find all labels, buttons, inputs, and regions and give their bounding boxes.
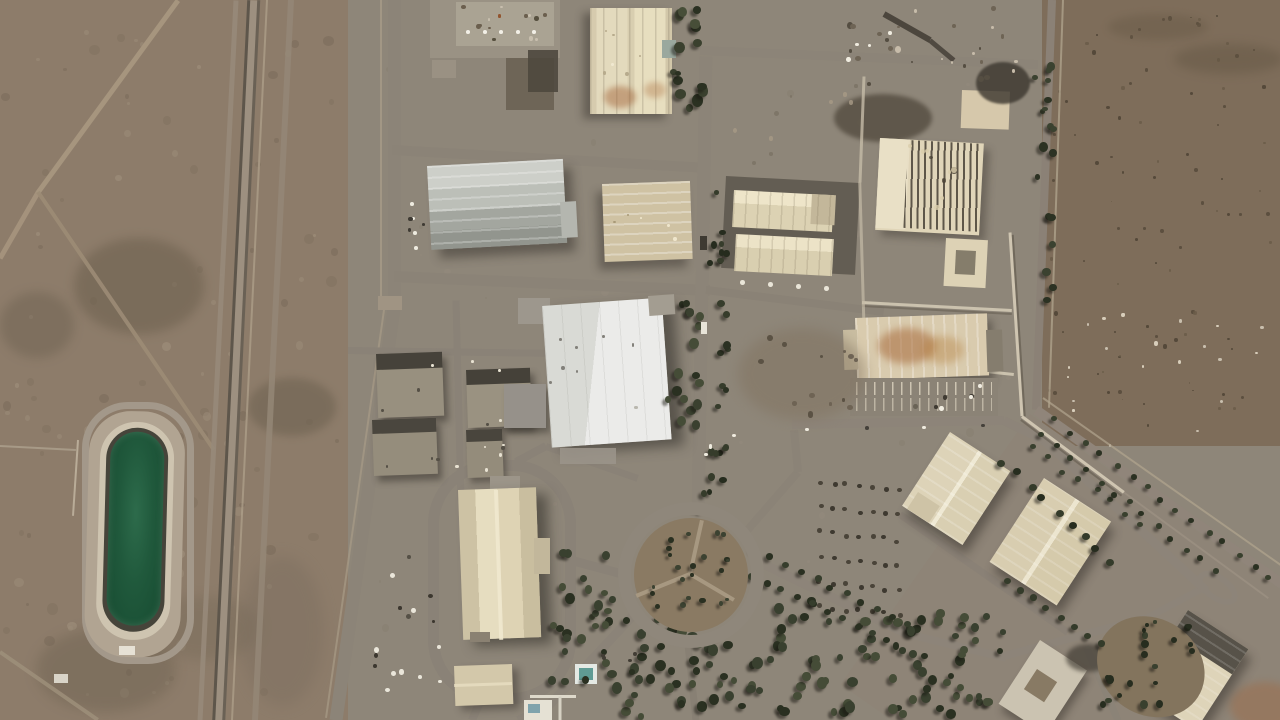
trees-se-road-n: [1067, 431, 1073, 436]
desert-left-texture-dark: [89, 45, 100, 55]
desert-left-texture-light: [15, 383, 19, 387]
warehouse-a-roof-units: [603, 71, 607, 74]
lot-sw-vehicles: [374, 647, 379, 653]
desert-left-texture-dark: [117, 34, 124, 42]
trees-perimeter-v: [1046, 67, 1052, 74]
parking-cars: [978, 384, 982, 388]
dirt-island-trees: [1141, 651, 1147, 658]
roundabout-trees: [715, 530, 720, 536]
block-m-vents: [484, 446, 486, 448]
desert-left-texture-dark: [40, 451, 44, 456]
trees-v1-south: [722, 446, 728, 451]
avenue-trees-s: [839, 615, 846, 621]
desert-right-speckles: [1053, 391, 1057, 395]
warehouse-b-cars: [410, 202, 414, 206]
park-east: [928, 675, 937, 685]
park-east: [972, 637, 978, 644]
parking-stripes-2: [856, 398, 992, 411]
block-m4-dark: [466, 429, 502, 442]
compound-texture: [739, 441, 743, 445]
desert-left-texture-dark: [31, 396, 37, 402]
trees-se-road-n: [1096, 450, 1102, 455]
trees-perimeter-v: [1032, 75, 1038, 80]
rock-patch-2: [0, 292, 74, 358]
warehouse-b-cars: [414, 246, 418, 250]
pond-hut-2: [54, 674, 68, 683]
trees-west-of-d: [719, 230, 726, 235]
block-m1-dark: [376, 352, 443, 370]
compound-texture: [807, 560, 810, 563]
trees-west-of-d: [717, 258, 723, 263]
block-m-vents: [455, 465, 458, 468]
trees-between-g-h: [1082, 533, 1090, 540]
desert-right-light-speckles: [1154, 341, 1158, 345]
lot-sw-vehicles: [391, 671, 396, 676]
trees-h-sw: [1084, 633, 1091, 639]
e-south-building-dark: [955, 250, 976, 275]
industrial-roof-clutter: [529, 36, 533, 40]
dirt-island-trees: [1189, 648, 1195, 654]
roundabout-trees: [701, 554, 707, 560]
trees-perimeter-v: [1045, 78, 1050, 83]
white-trucks: [888, 31, 892, 36]
dirt-island-trees: [1142, 632, 1147, 638]
desert-right-speckles: [1174, 338, 1178, 342]
park-east: [943, 679, 950, 686]
desert-right-speckles: [1193, 311, 1197, 314]
trees-h-sw: [1017, 587, 1024, 593]
desert-right-speckles: [1179, 246, 1181, 248]
trees-east-of-a: [675, 89, 686, 99]
ne-streak-1: [1108, 14, 1208, 40]
debris-field: [979, 47, 981, 49]
park-south-1: [635, 675, 643, 684]
roundabout-trees: [668, 537, 674, 543]
trees-east-of-hall: [689, 338, 699, 349]
industrial-plant: [456, 2, 554, 46]
dirt-island-trees: [1105, 698, 1112, 704]
desert-left-texture-dark: [326, 276, 337, 287]
truck-on-v1-white: [701, 322, 707, 334]
park-south-1: [725, 691, 734, 701]
trees-se-road-s: [1167, 536, 1173, 541]
desert-right-speckles: [1117, 227, 1120, 230]
desert-right-speckles: [1146, 325, 1149, 327]
lot-sw-vehicles: [399, 669, 404, 674]
debris-field: [991, 26, 994, 29]
park-south-1: [657, 643, 665, 650]
park-east: [918, 667, 927, 677]
desert-right-speckles: [1054, 311, 1058, 315]
trees-v1-south: [707, 489, 712, 495]
park-east: [923, 685, 931, 693]
park-west: [594, 600, 604, 611]
warehouse-d1-ridges: [732, 190, 834, 232]
park-west: [592, 623, 599, 629]
desert-left-texture-dark: [331, 248, 338, 255]
debris-field: [952, 24, 956, 28]
park-west: [582, 676, 589, 684]
park-east: [917, 615, 926, 625]
cars-near-roundabout: [601, 654, 604, 657]
compound-texture: [899, 440, 905, 445]
block-m-vents: [499, 419, 502, 422]
trees-east-of-hall: [680, 395, 687, 403]
avenue-trees-n: [844, 590, 851, 596]
small-house-sw-roof: [528, 704, 540, 713]
debris-field: [1012, 69, 1015, 73]
desert-right-light-speckles: [1203, 345, 1205, 348]
park-south-2: [817, 677, 827, 688]
complex-e-patches: [908, 144, 913, 148]
trees-v1-east: [717, 350, 724, 356]
desert-right-speckles: [1153, 176, 1156, 179]
trees-se-road-n: [1219, 538, 1225, 543]
desert-right-speckles: [1065, 100, 1068, 103]
field-east-marks: [767, 335, 773, 341]
trees-east-of-hall: [672, 386, 681, 396]
park-east: [958, 652, 966, 658]
debris-field: [984, 75, 990, 80]
white-hall-clutter: [602, 335, 605, 338]
park-east: [907, 626, 915, 636]
park-south-1: [752, 657, 763, 669]
warehouse-a-stain-2: [644, 82, 666, 98]
lot-sw-vehicles: [398, 606, 401, 610]
white-trucks: [868, 44, 872, 47]
trees-se-road-n: [1172, 508, 1178, 513]
complex-e-patches: [940, 196, 944, 200]
yard-marks-ne: [733, 128, 737, 133]
park-south-2: [831, 708, 837, 715]
trees-se-road-s: [1083, 467, 1089, 472]
desert-right-speckles: [1085, 42, 1088, 46]
desert-left-texture-dark: [281, 299, 288, 307]
trees-se-road-s: [1127, 499, 1133, 504]
trees-west-of-d: [719, 249, 725, 255]
complex-e-streaks: [903, 140, 982, 232]
debris-field: [867, 82, 871, 86]
complex-e-patches: [934, 205, 939, 210]
orchard-row-5: [859, 585, 864, 590]
trees-h-sw: [1004, 578, 1011, 584]
desert-right-speckles: [1184, 333, 1187, 335]
park-west: [609, 596, 616, 603]
park-south-2: [867, 635, 875, 642]
white-trucks: [855, 43, 858, 46]
avenue-trees-n: [857, 599, 864, 605]
trees-east-of-a: [690, 19, 701, 28]
block-m-vents: [498, 369, 501, 372]
roundabout-trees: [721, 532, 725, 536]
roundabout-trees: [666, 546, 671, 551]
park-south-2: [779, 707, 789, 717]
white-dots-mid: [709, 444, 713, 448]
white-hall-clutter: [559, 338, 562, 341]
trees-se-road-n: [1131, 474, 1137, 479]
lot-sw-vehicles: [407, 555, 411, 559]
desert-right-speckles: [1129, 82, 1132, 85]
dirt-island-trees: [1127, 680, 1133, 687]
white-hall-seams: [542, 298, 672, 448]
dirt-island-trees: [1153, 620, 1157, 623]
desert-left-texture-light: [296, 341, 304, 350]
desert-left-texture-dark: [19, 530, 24, 536]
orchard-row-4: [872, 561, 877, 566]
park-east: [953, 692, 960, 700]
industrial-cars: [483, 30, 487, 34]
desert-left-texture-light: [84, 30, 89, 35]
orchard-row-1: [833, 482, 838, 487]
pond-water: [106, 431, 165, 626]
lot-sw-vehicles: [438, 680, 442, 683]
park-south-2: [826, 618, 832, 625]
park-south-1: [646, 674, 655, 684]
desert-right-light-speckles: [1196, 430, 1199, 433]
trees-east-of-a: [693, 39, 702, 47]
park-east: [966, 694, 972, 701]
roundabout-trees: [699, 598, 705, 604]
compound-texture: [819, 512, 825, 519]
satellite-image: [0, 0, 1280, 720]
avenue-trees-s: [764, 580, 771, 586]
yard-marks-ne: [843, 92, 848, 96]
cars-on-h3: [922, 426, 926, 430]
desert-right-speckles: [1147, 424, 1149, 426]
avenue-trees-s: [855, 624, 862, 630]
pond-hut: [119, 646, 135, 655]
debris-field: [895, 46, 901, 52]
trees-se-road-n: [1115, 463, 1121, 468]
desert-right-speckles: [1118, 116, 1121, 120]
warehouse-b-cars: [413, 231, 417, 235]
park-south-1: [623, 617, 630, 624]
park-east: [1000, 629, 1006, 634]
debris-field: [897, 26, 900, 29]
avenue-trees-s: [794, 594, 801, 600]
debris-field: [888, 46, 893, 51]
white-hall-clutter: [575, 346, 578, 349]
park-south-1: [602, 621, 610, 629]
block-m-vents: [431, 364, 434, 367]
park-east: [921, 692, 931, 702]
debris-field: [991, 6, 997, 11]
trees-g-ne: [1075, 476, 1081, 481]
desert-right-speckles: [1163, 344, 1167, 348]
park-south-1: [637, 653, 646, 661]
compound-texture: [1006, 376, 1011, 380]
yard-marks-ne: [854, 84, 858, 88]
d-cars: [824, 286, 829, 291]
trees-g-ne: [1095, 487, 1101, 492]
industrial-roof-clutter: [528, 14, 531, 17]
truck-on-v1-dark: [700, 236, 707, 250]
trees-perimeter-v: [1049, 149, 1056, 157]
avenue-trees-s: [809, 600, 816, 606]
d-cars: [740, 280, 745, 285]
desert-left-texture-dark: [27, 533, 31, 537]
trees-se-road-n: [1083, 440, 1089, 445]
park-west: [565, 593, 574, 604]
desert-left-texture-light: [313, 234, 316, 237]
warehouse-b-ridges: [427, 159, 567, 250]
trees-perimeter-v: [1039, 142, 1047, 152]
park-south-1: [625, 699, 633, 707]
park-west: [561, 678, 568, 686]
white-hall-clutter: [634, 406, 637, 409]
desert-right-light-speckles: [1072, 409, 1074, 412]
field-east-marks: [792, 401, 798, 406]
desert-left-texture-dark: [323, 36, 334, 46]
park-south-2: [811, 660, 821, 671]
park-east: [983, 698, 991, 707]
field-east-marks: [808, 411, 814, 417]
trees-se-road-n: [1253, 564, 1259, 569]
debris-field: [877, 32, 882, 36]
orchard-row-3: [844, 534, 849, 539]
desert-left-texture-light: [197, 65, 201, 69]
compound-texture: [382, 624, 389, 632]
d-cars: [796, 284, 801, 289]
desert-right-speckles: [1218, 407, 1220, 409]
building-f-annex-e: [986, 329, 1003, 372]
park-south-2: [778, 642, 787, 652]
desert-right-speckles: [1239, 213, 1241, 216]
trees-east-of-a: [674, 42, 685, 54]
park-south-1: [706, 661, 713, 667]
avenue-trees-n: [904, 621, 911, 627]
park-south-1: [693, 667, 700, 675]
debris-field: [978, 76, 984, 82]
yard-marks-ne: [790, 95, 792, 97]
trees-perimeter-v: [1044, 97, 1052, 104]
trees-v1-east: [723, 387, 729, 393]
trees-perimeter-v: [1047, 214, 1056, 222]
white-path-2: [559, 696, 562, 720]
trees-h-sw: [1030, 594, 1037, 600]
trees-east-of-hall: [686, 309, 694, 317]
white-hall-clutter: [632, 343, 635, 346]
west-fence-north: [380, 0, 382, 308]
desert-right-speckles: [1155, 262, 1157, 264]
trees-perimeter-v: [1042, 107, 1047, 111]
desert-right-speckles: [1216, 210, 1218, 212]
desert-right-speckles: [1160, 229, 1164, 233]
desert-left-texture-dark: [38, 245, 43, 249]
desert-right-speckles: [1107, 391, 1110, 394]
trees-v1-east: [717, 300, 725, 307]
block-m-vents: [436, 458, 439, 462]
warehouse-b-cars-dark: [408, 217, 412, 221]
roundabout-trees: [686, 532, 691, 536]
orchard-row-4: [832, 556, 837, 561]
roundabout-trees: [680, 602, 686, 608]
desert-left-texture-dark: [42, 425, 50, 433]
lot-sw-vehicles: [411, 608, 416, 613]
trees-east-of-a: [686, 104, 693, 112]
desert-left-texture-dark: [190, 165, 198, 174]
desert-right-light-speckles: [1178, 360, 1181, 364]
trees-perimeter-v: [1043, 297, 1051, 303]
rock-patch-6: [240, 556, 324, 706]
e-north-dark-trees: [976, 62, 1030, 104]
block-m-vents: [471, 360, 474, 363]
park-south-1: [717, 681, 723, 688]
desert-right-speckles: [1269, 241, 1271, 243]
desert-right-speckles: [1121, 86, 1125, 89]
desert-left-texture-light: [172, 150, 178, 157]
desert-right-speckles: [1106, 106, 1110, 109]
trees-se-road-s: [1156, 523, 1162, 528]
debris-field: [914, 9, 917, 13]
dirt-island-trees: [1188, 642, 1194, 647]
desert-right-speckles: [1233, 407, 1236, 410]
desert-left-texture-dark: [1, 93, 10, 101]
desert-left-texture-light: [299, 277, 304, 282]
desert-right-light-speckles: [1218, 358, 1222, 361]
desert-left-texture-light: [5, 411, 9, 415]
park-east: [976, 693, 982, 699]
field-east-marks: [842, 398, 846, 402]
park-south-1: [689, 656, 698, 665]
block-m-vents: [501, 446, 504, 450]
park-south-1: [697, 701, 708, 712]
yard-marks-ne: [769, 152, 773, 156]
white-hall-annex-ne: [648, 294, 675, 316]
trees-se-road-s: [1213, 568, 1219, 573]
field-east-marks: [782, 342, 787, 347]
trees-perimeter-v: [1042, 268, 1051, 276]
avenue-trees-s: [777, 586, 784, 592]
industrial-cars: [532, 30, 536, 34]
desert-right-speckles: [1083, 260, 1085, 262]
roundabout-trees: [726, 559, 730, 562]
yard-marks-ne: [752, 161, 756, 165]
desert-right-speckles: [1052, 179, 1055, 182]
trees-perimeter-v: [1050, 126, 1057, 132]
desert-left-texture-dark: [63, 68, 67, 71]
orchard-row-1: [870, 485, 875, 490]
debris-field: [850, 24, 855, 29]
roundabout-trees: [686, 596, 690, 600]
dirt-island-trees: [1142, 628, 1146, 633]
park-south-2: [777, 624, 785, 633]
orchard-row-2: [830, 506, 835, 511]
industrial-roof-clutter: [461, 5, 466, 9]
desert-right-speckles: [1118, 390, 1122, 394]
trees-between-g-h: [1056, 510, 1064, 517]
park-east: [983, 613, 990, 620]
desert-right-light-speckles: [1216, 325, 1218, 327]
park-south-2: [909, 695, 917, 704]
desert-left-texture-light: [127, 102, 130, 105]
orchard-row-6: [817, 603, 822, 608]
avenue-trees-s: [869, 630, 876, 636]
white-hall-annex-s: [560, 448, 616, 464]
yard-marks-ne: [769, 136, 773, 140]
white-hall-annex-w: [504, 384, 546, 428]
roundabout-trees: [655, 604, 660, 609]
desert-left-texture-light: [36, 232, 40, 236]
block-m-vents: [486, 423, 488, 425]
park-south-1: [720, 673, 729, 680]
dirt-island-trees: [1152, 664, 1157, 668]
d-cars: [768, 282, 773, 287]
trees-west-of-d: [719, 241, 724, 246]
desert-right-light-speckles: [1121, 313, 1125, 317]
industrial-tower-2: [528, 50, 558, 92]
trees-v1-south: [708, 473, 715, 481]
